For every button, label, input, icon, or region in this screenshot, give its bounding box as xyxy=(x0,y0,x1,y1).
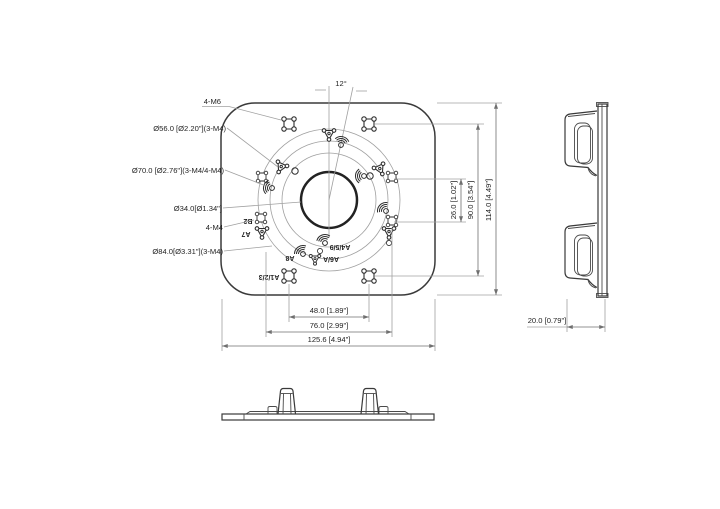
hole-square xyxy=(386,215,398,227)
callout-4m4: 4-M4 xyxy=(206,223,223,232)
callout-d56: Ø56.0 [Ø2.20"](3-M4) xyxy=(153,124,226,133)
bottom-post-right xyxy=(361,389,379,415)
hole-tag-a8: A8 xyxy=(285,254,294,261)
callout-d84: Ø84.0[Ø3.31"](3-M4) xyxy=(152,247,223,256)
callout-d34: Ø34.0[Ø1.34"] xyxy=(174,204,222,213)
hole-square xyxy=(386,171,398,183)
angle-label: 12° xyxy=(335,79,346,88)
callout-4m6: 4-M6 xyxy=(204,97,221,106)
hole-square-b2 xyxy=(255,212,267,224)
hole-tag-a123: A1/2/3 xyxy=(259,273,280,280)
dim-width-76: 76.0 [2.99"] xyxy=(310,321,349,330)
hole-tag-a7: A7 xyxy=(241,230,250,237)
hole-square xyxy=(256,171,268,183)
dim-height-114: 114.0 [4.49"] xyxy=(484,179,493,221)
dim-height-90: 90.0 [3.54"] xyxy=(466,181,475,220)
bottom-plate xyxy=(222,414,434,420)
bottom-view xyxy=(222,389,434,421)
dim-width-48: 48.0 [1.89"] xyxy=(310,306,349,315)
hole-m6 xyxy=(362,117,376,131)
callout-d70: Ø70.0 [Ø2.76"](3-M4/4-M4) xyxy=(132,166,225,175)
hole-tag-a459: A4/5/9 xyxy=(330,243,351,250)
side-hook-lower xyxy=(565,223,597,288)
dim-width-1256: 125.6 [4.94"] xyxy=(308,335,351,344)
technical-drawing-page: 12° B2 A7 A8 A6/A A4/5/9 A1/2/3 xyxy=(0,0,720,509)
hole-m6 xyxy=(282,117,296,131)
side-hook-upper xyxy=(565,111,597,176)
bottom-post-left xyxy=(278,389,296,415)
front-view: 12° B2 A7 A8 A6/A A4/5/9 A1/2/3 xyxy=(132,79,435,295)
hole-m6 xyxy=(362,269,376,283)
side-plate xyxy=(598,104,607,296)
hole-m6 xyxy=(282,269,296,283)
drawing-canvas: 12° B2 A7 A8 A6/A A4/5/9 A1/2/3 xyxy=(0,0,720,509)
side-view xyxy=(565,103,608,298)
dim-height-26: 26.0 [1.02"] xyxy=(449,181,458,220)
hole-tag-a6a: A6/A xyxy=(323,255,339,262)
dim-depth-20: 20.0 [0.79"] xyxy=(528,316,567,325)
